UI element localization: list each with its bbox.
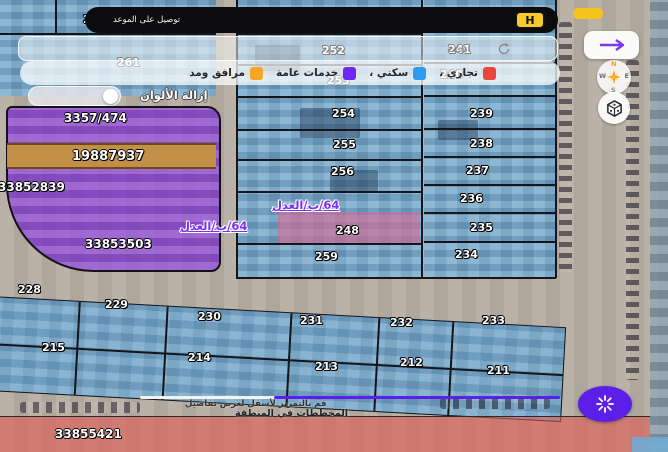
compass-east-label: E — [625, 73, 629, 80]
view-3d-dice-button[interactable] — [598, 92, 630, 124]
utilities-color-swatch — [250, 67, 263, 80]
parcel-number: 229 — [105, 299, 128, 310]
parcel-number: 213 — [315, 361, 338, 372]
plan-name-label[interactable]: 64/ب/العدل — [272, 200, 339, 212]
legend-item-commercial: تجاري ، — [439, 67, 496, 80]
legend-item-residential: سكني ، — [369, 67, 426, 80]
parcel-number: 239 — [470, 108, 493, 119]
refresh-icon[interactable] — [497, 42, 511, 56]
parcel-boundary — [236, 159, 422, 161]
plan-name-label[interactable]: 64/ب/العدل — [180, 221, 247, 233]
parcel-number: 235 — [470, 222, 493, 233]
compass-north-label: N — [611, 61, 616, 68]
hungerstation-logo: H — [516, 12, 544, 28]
arrow-right-icon — [597, 38, 627, 52]
parcel-number: 214 — [188, 352, 211, 363]
parcel-boundary — [236, 243, 422, 245]
parcel-boundary — [236, 191, 422, 193]
zoning-legend: تجاري ، سكني ، خدمات عامة مرافق ومد — [20, 61, 560, 85]
search-input[interactable]: ابحث — [18, 36, 558, 61]
commercial-color-swatch — [483, 67, 496, 80]
residential-corner — [632, 437, 668, 452]
parcel-boundary — [424, 95, 556, 97]
parked-cars — [559, 22, 572, 272]
parcel-number: 254 — [332, 108, 355, 119]
parcel-number: 233 — [482, 315, 505, 326]
parcel-boundary — [424, 212, 556, 214]
parcel-boundary — [236, 96, 422, 98]
parcel-number: 237 — [466, 165, 489, 176]
parcel-number: 256 — [331, 166, 354, 177]
toggle-knob[interactable] — [103, 89, 118, 104]
parked-cars — [20, 402, 140, 413]
parcel-number: 211 — [487, 365, 510, 376]
dice-cube-icon — [605, 99, 624, 118]
parked-cars — [440, 398, 550, 409]
burst-icon — [595, 394, 615, 414]
navigate-arrow-button[interactable] — [584, 31, 639, 59]
compass-widget[interactable]: N S E W — [597, 60, 631, 94]
parcel-boundary — [424, 184, 556, 186]
legend-item-services: خدمات عامة — [276, 67, 356, 80]
parcel-number: 230 — [198, 311, 221, 322]
parcel-number: 259 — [315, 251, 338, 262]
banner-fragment — [573, 8, 603, 19]
parcel-number: 236 — [460, 193, 483, 204]
deed-number-label: 33853503 — [85, 238, 152, 250]
deed-number-label: 3357/474 — [64, 112, 127, 124]
remove-colors-toggle[interactable] — [28, 86, 121, 106]
search-placeholder: ابحث — [447, 42, 471, 55]
parcel-number: 228 — [18, 284, 41, 295]
parcel-number: 234 — [455, 249, 478, 260]
services-color-swatch — [343, 67, 356, 80]
parcel-boundary — [424, 241, 556, 243]
locate-burst-button[interactable] — [578, 386, 632, 422]
ad-banner-text: توصيل على الموعد — [113, 15, 180, 25]
scroll-hint-line2: المخططات في المنطقة — [235, 408, 348, 419]
compass-star-icon — [607, 70, 621, 84]
map-edge-buildings — [650, 0, 668, 452]
parcel-number: 215 — [42, 342, 65, 353]
remove-colors-label: إزالة الألوان — [140, 88, 208, 102]
parcel-number: 248 — [336, 225, 359, 236]
parcel-boundary — [424, 156, 556, 158]
parcel-boundary — [0, 343, 563, 376]
compass-west-label: W — [599, 73, 606, 80]
legend-item-utilities: مرافق ومد — [189, 67, 263, 80]
parcel-number: 255 — [333, 139, 356, 150]
ad-banner[interactable]: توصيل على الموعد H — [85, 7, 558, 33]
parcel-boundary — [236, 277, 556, 279]
deed-number-label: 33852839 — [0, 181, 65, 193]
parcel-number: 238 — [470, 138, 493, 149]
parcel-boundary — [424, 128, 556, 130]
parcel-boundary — [236, 129, 422, 131]
legend-label: خدمات عامة — [276, 67, 338, 79]
deed-number-label: 19887937 — [72, 150, 144, 163]
parcel-boundary — [236, 33, 422, 35]
parcel-number: 231 — [300, 315, 323, 326]
deed-number-label: 33855421 — [55, 428, 122, 440]
parcel-number: 212 — [400, 357, 423, 368]
legend-label: مرافق ومد — [189, 67, 245, 79]
parcel-number: 232 — [390, 317, 413, 328]
parcel-boundary — [55, 0, 57, 34]
map-canvas[interactable]: 3357/474 19887937 33852839 33853503 64/ب… — [0, 0, 668, 452]
residential-color-swatch — [413, 67, 426, 80]
legend-label: سكني ، — [369, 67, 408, 79]
legend-label: تجاري ، — [439, 67, 478, 79]
parcel-boundary — [0, 33, 216, 35]
